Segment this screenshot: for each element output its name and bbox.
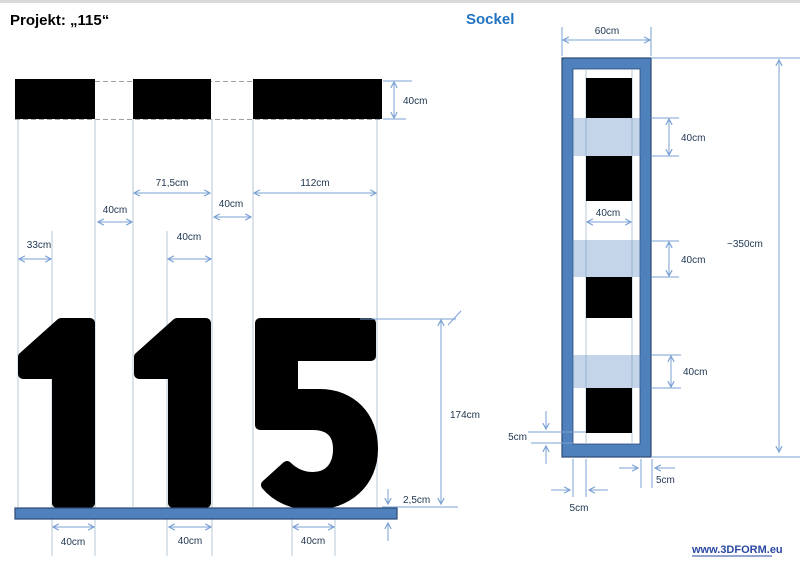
front-view: 40cm 71,5cm 112cm 40cm 40cm [15, 79, 480, 556]
website-link-group[interactable]: www.3DFORM.eu [691, 544, 783, 556]
dim-label-digit2-width: 71,5cm [156, 178, 189, 189]
digits-115 [23, 323, 373, 505]
base-plate [15, 508, 397, 519]
column-block-1 [586, 78, 632, 118]
page-title: Projekt: „115“ [10, 12, 109, 29]
dim-digit2-width: 71,5cm [134, 178, 210, 193]
dim-label-plate-thickness: 2,5cm [403, 495, 430, 506]
dim-label-digit3-width: 112cm [300, 178, 329, 189]
dim-label-column-width: 40cm [596, 208, 620, 219]
dim-label-digit-height: 174cm [450, 410, 480, 421]
dim-band-3: 40cm [651, 355, 707, 388]
dim-label-left-gap: 5cm [570, 503, 589, 514]
digit-1-second [139, 323, 206, 503]
dim-label-band-1: 40cm [681, 133, 705, 144]
dim-label-digit2-stem: 40cm [177, 232, 201, 243]
dim-label-right-wall: 5cm [656, 475, 675, 486]
technical-drawing: 40cm 71,5cm 112cm 40cm 40cm [0, 0, 800, 570]
top-block-2 [133, 79, 211, 119]
dim-label-gap-2-3: 40cm [219, 199, 243, 210]
dim-digit2-stem: 40cm [168, 232, 211, 259]
column-block-2 [586, 156, 632, 201]
dim-digit1-offset: 33cm [19, 240, 51, 259]
dim-block-height: 40cm [383, 81, 427, 119]
dim-outer-width: 60cm [562, 26, 651, 56]
sockel-title: Sockel [466, 11, 514, 28]
top-block-1 [15, 79, 95, 119]
dim-band-2: 40cm [651, 241, 705, 277]
dim-label-outer-width: 60cm [595, 26, 619, 37]
dim-gap-1-2: 40cm [98, 205, 132, 222]
dim-digit3-width: 112cm [254, 178, 376, 193]
blue-band-1 [565, 118, 646, 156]
dim-label-stem-2: 40cm [178, 536, 202, 547]
dim-label-digit1-offset: 33cm [27, 240, 51, 251]
digit-1-first [23, 323, 90, 503]
dim-label-gap-1-2: 40cm [103, 205, 127, 216]
dim-label-band-3: 40cm [683, 367, 707, 378]
column-block-4 [586, 388, 632, 433]
dim-label-bottom-clearance: 5cm [508, 432, 527, 443]
dim-label-stem-1: 40cm [61, 537, 85, 548]
dim-stem-width-3: 40cm [293, 527, 334, 547]
dim-label-total-height: ~350cm [727, 239, 763, 250]
dim-stem-width-1: 40cm [53, 527, 94, 548]
dim-gap-2-3: 40cm [214, 199, 251, 217]
top-block-3 [253, 79, 382, 119]
dim-stem-width-2: 40cm [169, 527, 211, 547]
drawing-page: 40cm 71,5cm 112cm 40cm 40cm [0, 0, 800, 570]
blue-band-2 [565, 240, 646, 277]
column-block-3 [586, 277, 632, 318]
dim-digit-height: 174cm [360, 311, 480, 504]
ext-tick [448, 311, 461, 325]
website-link[interactable]: www.3DFORM.eu [691, 544, 783, 556]
dim-label-stem-3: 40cm [301, 536, 325, 547]
dim-label-band-2: 40cm [681, 255, 705, 266]
blue-band-3 [565, 355, 646, 388]
dim-band-1: 40cm [651, 118, 705, 156]
sockel-view: 60cm ~350cm 40cm 40cm [508, 26, 800, 514]
dim-left-gap: 5cm [551, 459, 608, 514]
dim-label-block-height: 40cm [403, 96, 427, 107]
dim-right-wall: 5cm [619, 459, 675, 488]
digit-5 [260, 323, 373, 505]
